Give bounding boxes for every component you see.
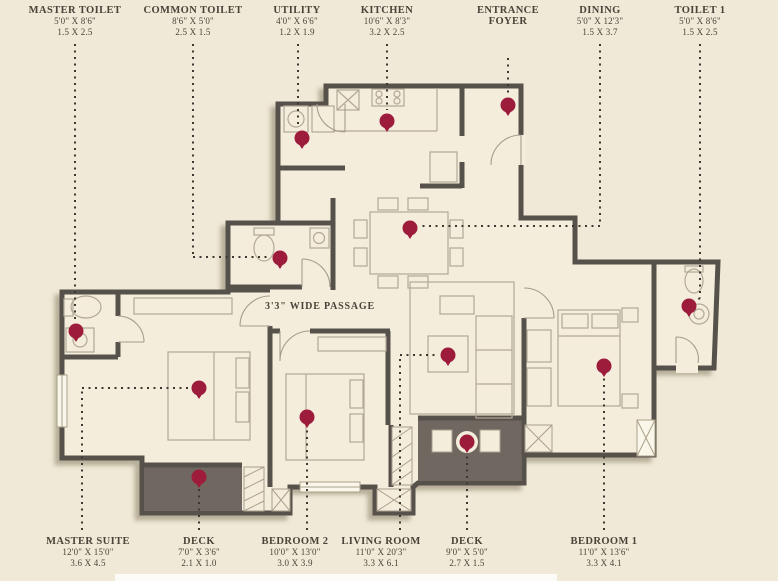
label-dining: DINING 5'0" X 12'3" 1.5 X 3.7 bbox=[577, 5, 624, 38]
floor-plan-drawing bbox=[0, 0, 778, 581]
label-bedroom-2: BEDROOM 2 10'0" X 13'0" 3.0 X 3.9 bbox=[262, 536, 329, 569]
marker-pin-deck-right[interactable] bbox=[456, 431, 478, 453]
label-toilet-1: TOILET 1 5'0" X 8'6" 1.5 X 2.5 bbox=[675, 5, 726, 38]
label-deck-right: DECK 9'0" X 5'0" 2.7 X 1.5 bbox=[446, 536, 488, 569]
deck-left-floor bbox=[144, 465, 242, 511]
label-bedroom-1: BEDROOM 1 11'0" X 13'6" 3.3 X 4.1 bbox=[571, 536, 638, 569]
label-utility: UTILITY 4'0" X 6'6" 1.2 X 1.9 bbox=[273, 5, 320, 38]
bottom-strip bbox=[115, 574, 557, 581]
passage-label: 3'3" WIDE PASSAGE bbox=[265, 301, 375, 312]
label-entrance-foyer: ENTRANCE FOYER bbox=[475, 5, 541, 27]
label-living-room: LIVING ROOM 11'0" X 20'3" 3.3 X 6.1 bbox=[341, 536, 420, 569]
deck-planter bbox=[480, 430, 500, 452]
label-common-toilet: COMMON TOILET 8'6" X 5'0" 2.5 X 1.5 bbox=[143, 5, 242, 38]
floor-plan-page: MASTER TOILET 5'0" X 8'6" 1.5 X 2.5 COMM… bbox=[0, 0, 778, 581]
deck-planter bbox=[432, 430, 452, 452]
label-master-toilet: MASTER TOILET 5'0" X 8'6" 1.5 X 2.5 bbox=[29, 5, 122, 38]
label-master-suite: MASTER SUITE 12'0" X 15'0" 3.6 X 4.5 bbox=[46, 536, 130, 569]
label-deck-left: DECK 7'0" X 3'6" 2.1 X 1.0 bbox=[178, 536, 220, 569]
label-kitchen: KITCHEN 10'6" X 8'3" 3.2 X 2.5 bbox=[361, 5, 413, 38]
